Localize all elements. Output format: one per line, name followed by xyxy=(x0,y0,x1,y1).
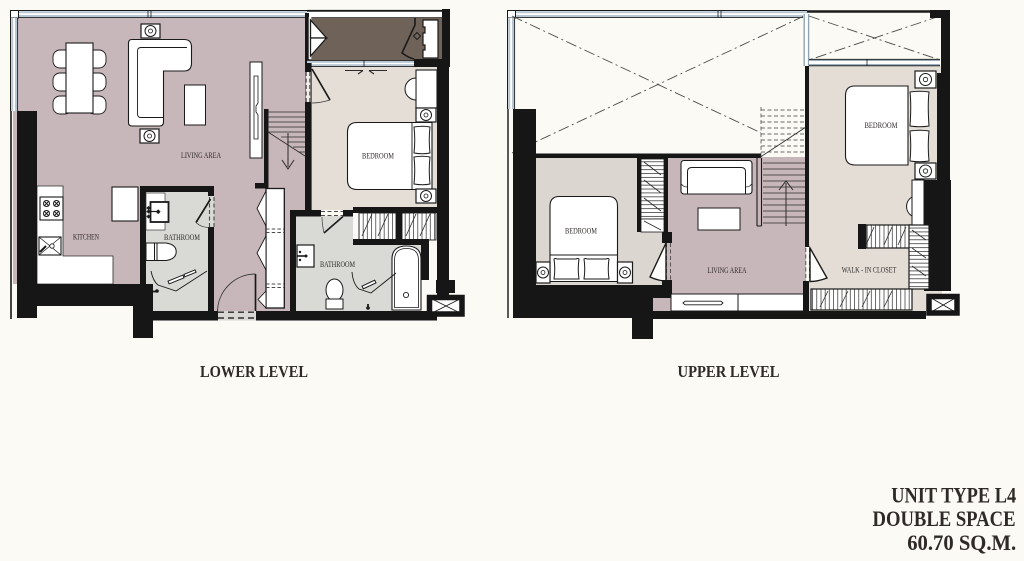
svg-text:BEDROOM: BEDROOM xyxy=(865,121,898,130)
svg-text:BATHROOM: BATHROOM xyxy=(320,260,355,269)
svg-text:UPPER LEVEL: UPPER LEVEL xyxy=(678,362,780,381)
svg-text:KITCHEN: KITCHEN xyxy=(73,233,99,242)
svg-text:BATHROOM: BATHROOM xyxy=(164,233,200,242)
svg-text:LIVING AREA: LIVING AREA xyxy=(708,266,747,275)
svg-text:DOUBLE SPACE: DOUBLE SPACE xyxy=(873,506,1016,531)
svg-text:60.70 SQ.M.: 60.70 SQ.M. xyxy=(907,530,1016,555)
svg-text:WALK - IN CLOSET: WALK - IN CLOSET xyxy=(842,266,897,275)
svg-text:BEDROOM: BEDROOM xyxy=(362,151,394,160)
svg-text:LIVING AREA: LIVING AREA xyxy=(181,151,221,160)
svg-text:LOWER LEVEL: LOWER LEVEL xyxy=(200,362,308,381)
svg-text:BEDROOM: BEDROOM xyxy=(565,227,597,236)
svg-text:UNIT TYPE L4: UNIT TYPE L4 xyxy=(891,482,1016,507)
